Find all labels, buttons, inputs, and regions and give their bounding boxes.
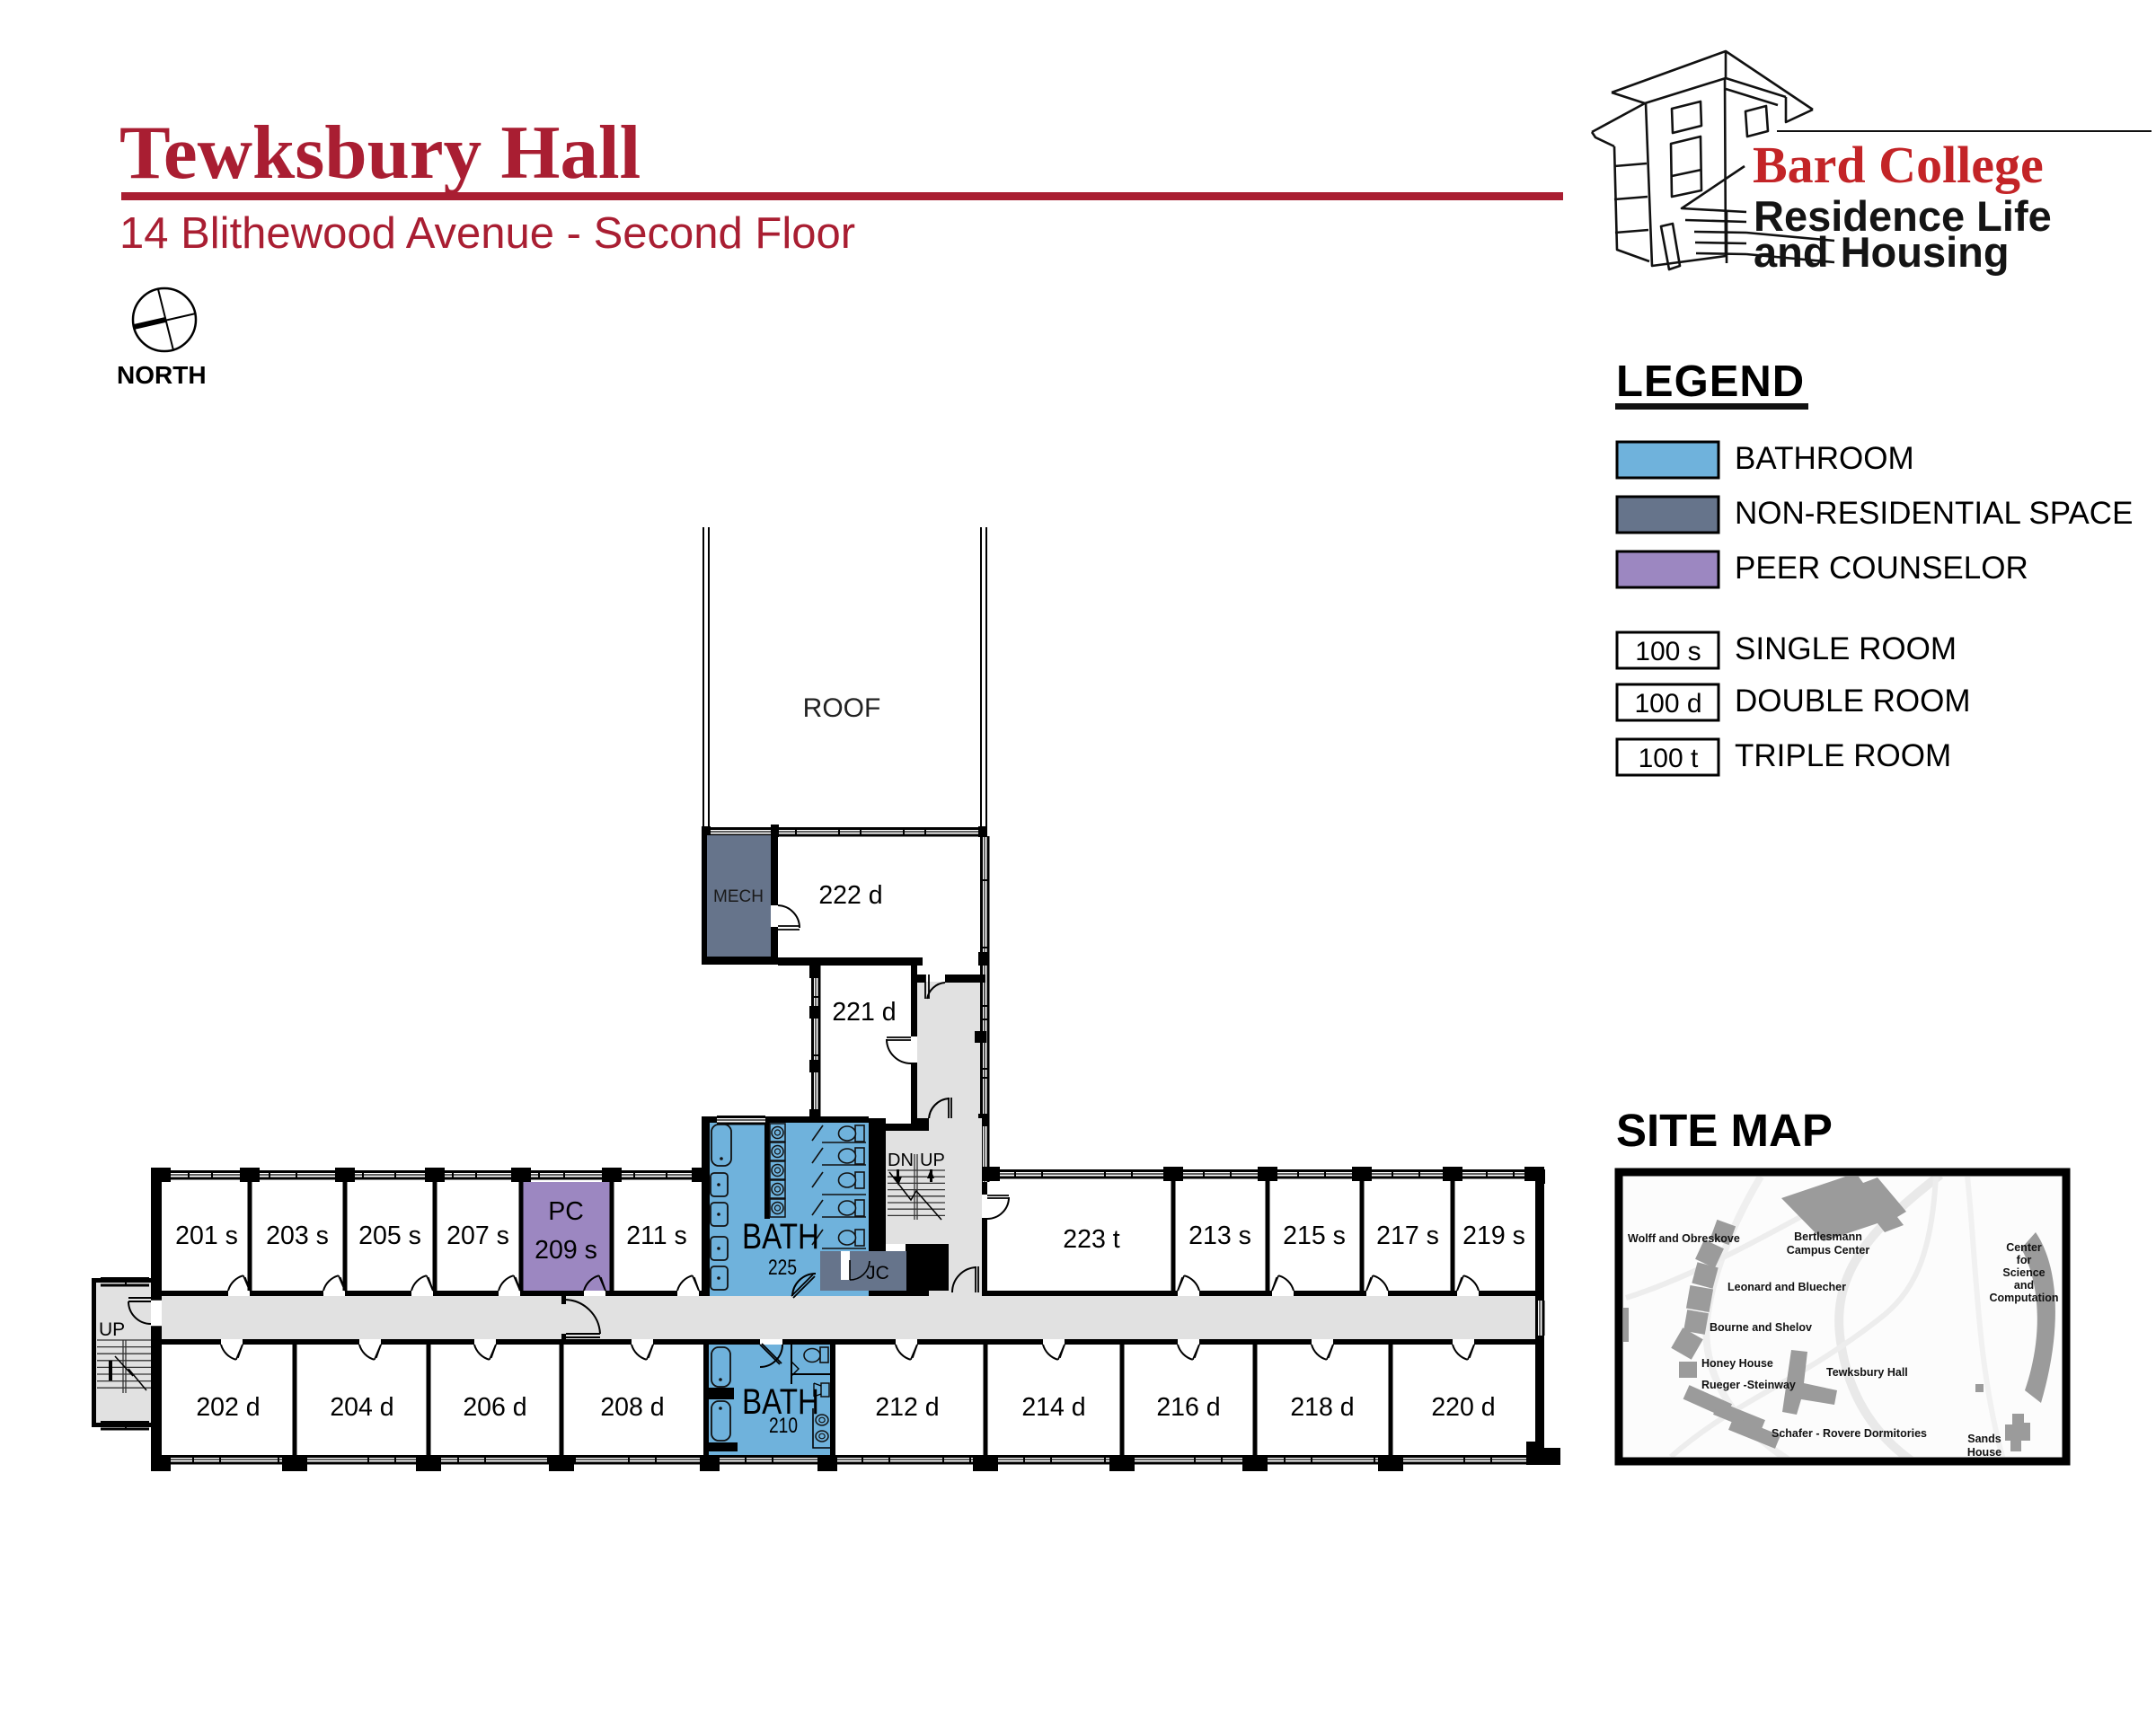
svg-text:Wolff and Obreskove: Wolff and Obreskove	[1628, 1232, 1740, 1245]
svg-text:100 d: 100 d	[1634, 689, 1701, 719]
svg-text:210: 210	[769, 1414, 798, 1438]
svg-text:Schafer - Rovere Dormitories: Schafer - Rovere Dormitories	[1772, 1427, 1927, 1440]
svg-text:218 d: 218 d	[1290, 1393, 1354, 1422]
svg-text:222 d: 222 d	[818, 881, 882, 910]
svg-text:221 d: 221 d	[832, 998, 896, 1027]
svg-text:225: 225	[768, 1256, 797, 1280]
svg-text:217 s: 217 s	[1376, 1222, 1439, 1250]
svg-text:206 d: 206 d	[463, 1393, 526, 1422]
svg-text:Tewksbury Hall: Tewksbury Hall	[119, 110, 641, 195]
svg-text:for: for	[2017, 1254, 2032, 1266]
svg-text:Sands: Sands	[1967, 1433, 2001, 1445]
svg-text:DOUBLE ROOM: DOUBLE ROOM	[1735, 684, 1971, 719]
svg-text:220 d: 220 d	[1431, 1393, 1495, 1422]
svg-text:223 t: 223 t	[1063, 1225, 1119, 1254]
svg-text:JC: JC	[866, 1263, 889, 1283]
svg-text:TRIPLE ROOM: TRIPLE ROOM	[1735, 738, 1951, 773]
svg-text:LEGEND: LEGEND	[1616, 357, 1805, 406]
svg-text:203 s: 203 s	[266, 1222, 329, 1250]
svg-text:207 s: 207 s	[446, 1222, 509, 1250]
svg-text:Science: Science	[2002, 1266, 2045, 1279]
svg-text:213 s: 213 s	[1188, 1222, 1251, 1250]
svg-text:205 s: 205 s	[358, 1222, 421, 1250]
svg-text:Bertlesmann: Bertlesmann	[1794, 1230, 1862, 1243]
svg-text:Rueger -Steinway: Rueger -Steinway	[1701, 1379, 1796, 1391]
svg-text:201 s: 201 s	[175, 1222, 238, 1250]
svg-text:BATHROOM: BATHROOM	[1735, 441, 1914, 476]
svg-text:204 d: 204 d	[330, 1393, 393, 1422]
svg-text:219 s: 219 s	[1462, 1222, 1525, 1250]
svg-text:MECH: MECH	[713, 887, 764, 906]
svg-text:House: House	[1967, 1446, 2001, 1459]
svg-text:214 d: 214 d	[1021, 1393, 1085, 1422]
svg-text:PC: PC	[548, 1197, 584, 1226]
svg-text:UP: UP	[920, 1151, 945, 1170]
svg-text:Tewksbury Hall: Tewksbury Hall	[1826, 1366, 1908, 1379]
svg-text:14 Blithewood Avenue - Second: 14 Blithewood Avenue - Second Floor	[119, 209, 855, 258]
svg-text:208 d: 208 d	[600, 1393, 664, 1422]
svg-text:and: and	[2014, 1279, 2034, 1292]
svg-text:215 s: 215 s	[1283, 1222, 1346, 1250]
svg-text:NORTH: NORTH	[117, 361, 207, 389]
svg-text:PEER COUNSELOR: PEER COUNSELOR	[1735, 551, 2028, 586]
svg-text:and Housing: and Housing	[1754, 228, 2010, 276]
svg-text:Bard College: Bard College	[1753, 136, 2044, 194]
svg-text:Leonard and Bluecher: Leonard and Bluecher	[1727, 1281, 1846, 1293]
svg-text:Computation: Computation	[1989, 1292, 2058, 1304]
svg-text:209 s: 209 s	[535, 1236, 597, 1265]
svg-text:202 d: 202 d	[196, 1393, 260, 1422]
svg-text:Campus Center: Campus Center	[1787, 1244, 1870, 1257]
svg-text:216 d: 216 d	[1156, 1393, 1220, 1422]
svg-text:Center: Center	[2006, 1241, 2042, 1254]
svg-text:SINGLE ROOM: SINGLE ROOM	[1735, 631, 1957, 666]
svg-text:Honey House: Honey House	[1701, 1357, 1773, 1370]
svg-text:NON-RESIDENTIAL SPACE: NON-RESIDENTIAL SPACE	[1735, 496, 2133, 531]
svg-text:100 t: 100 t	[1639, 744, 1699, 773]
svg-text:ROOF: ROOF	[803, 693, 881, 723]
svg-text:UP: UP	[99, 1319, 125, 1340]
svg-text:212 d: 212 d	[875, 1393, 939, 1422]
svg-text:Bourne and Shelov: Bourne and Shelov	[1710, 1321, 1812, 1334]
svg-text:100 s: 100 s	[1635, 637, 1701, 666]
svg-text:SITE MAP: SITE MAP	[1616, 1105, 1833, 1156]
svg-text:DN: DN	[888, 1151, 914, 1170]
svg-text:211 s: 211 s	[626, 1222, 687, 1250]
svg-text:BATH: BATH	[742, 1217, 819, 1257]
